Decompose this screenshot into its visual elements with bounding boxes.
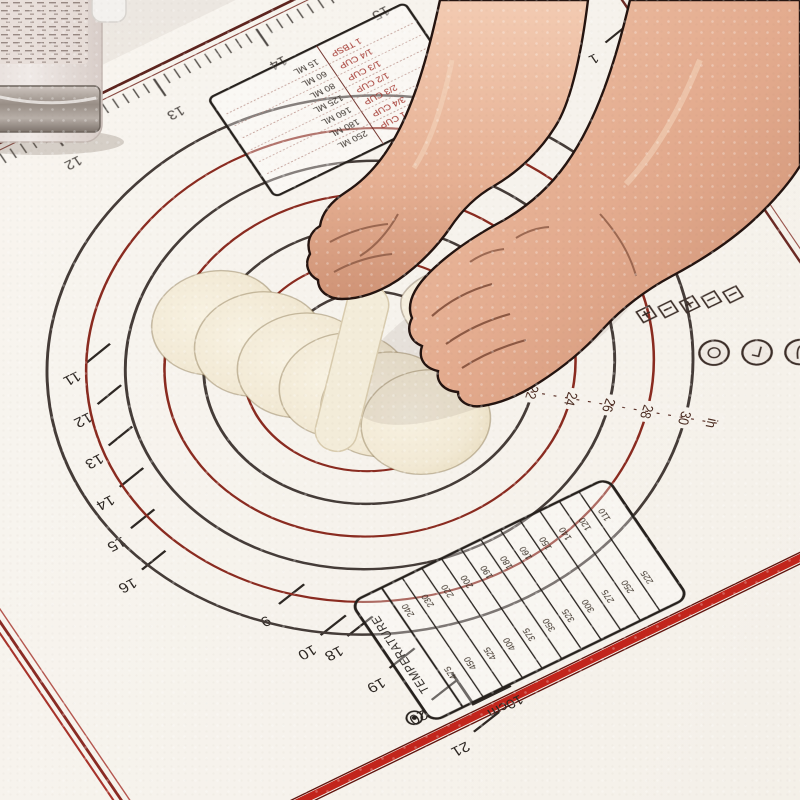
sauce-bottle [92, 0, 126, 22]
jar-label [0, 0, 88, 64]
jar-lid-band [0, 86, 100, 132]
mason-jar [0, 0, 126, 155]
scene: 10 11 12 13 14 15 16 17 11 12 13 14 15 [0, 0, 800, 800]
foreground [0, 0, 800, 800]
